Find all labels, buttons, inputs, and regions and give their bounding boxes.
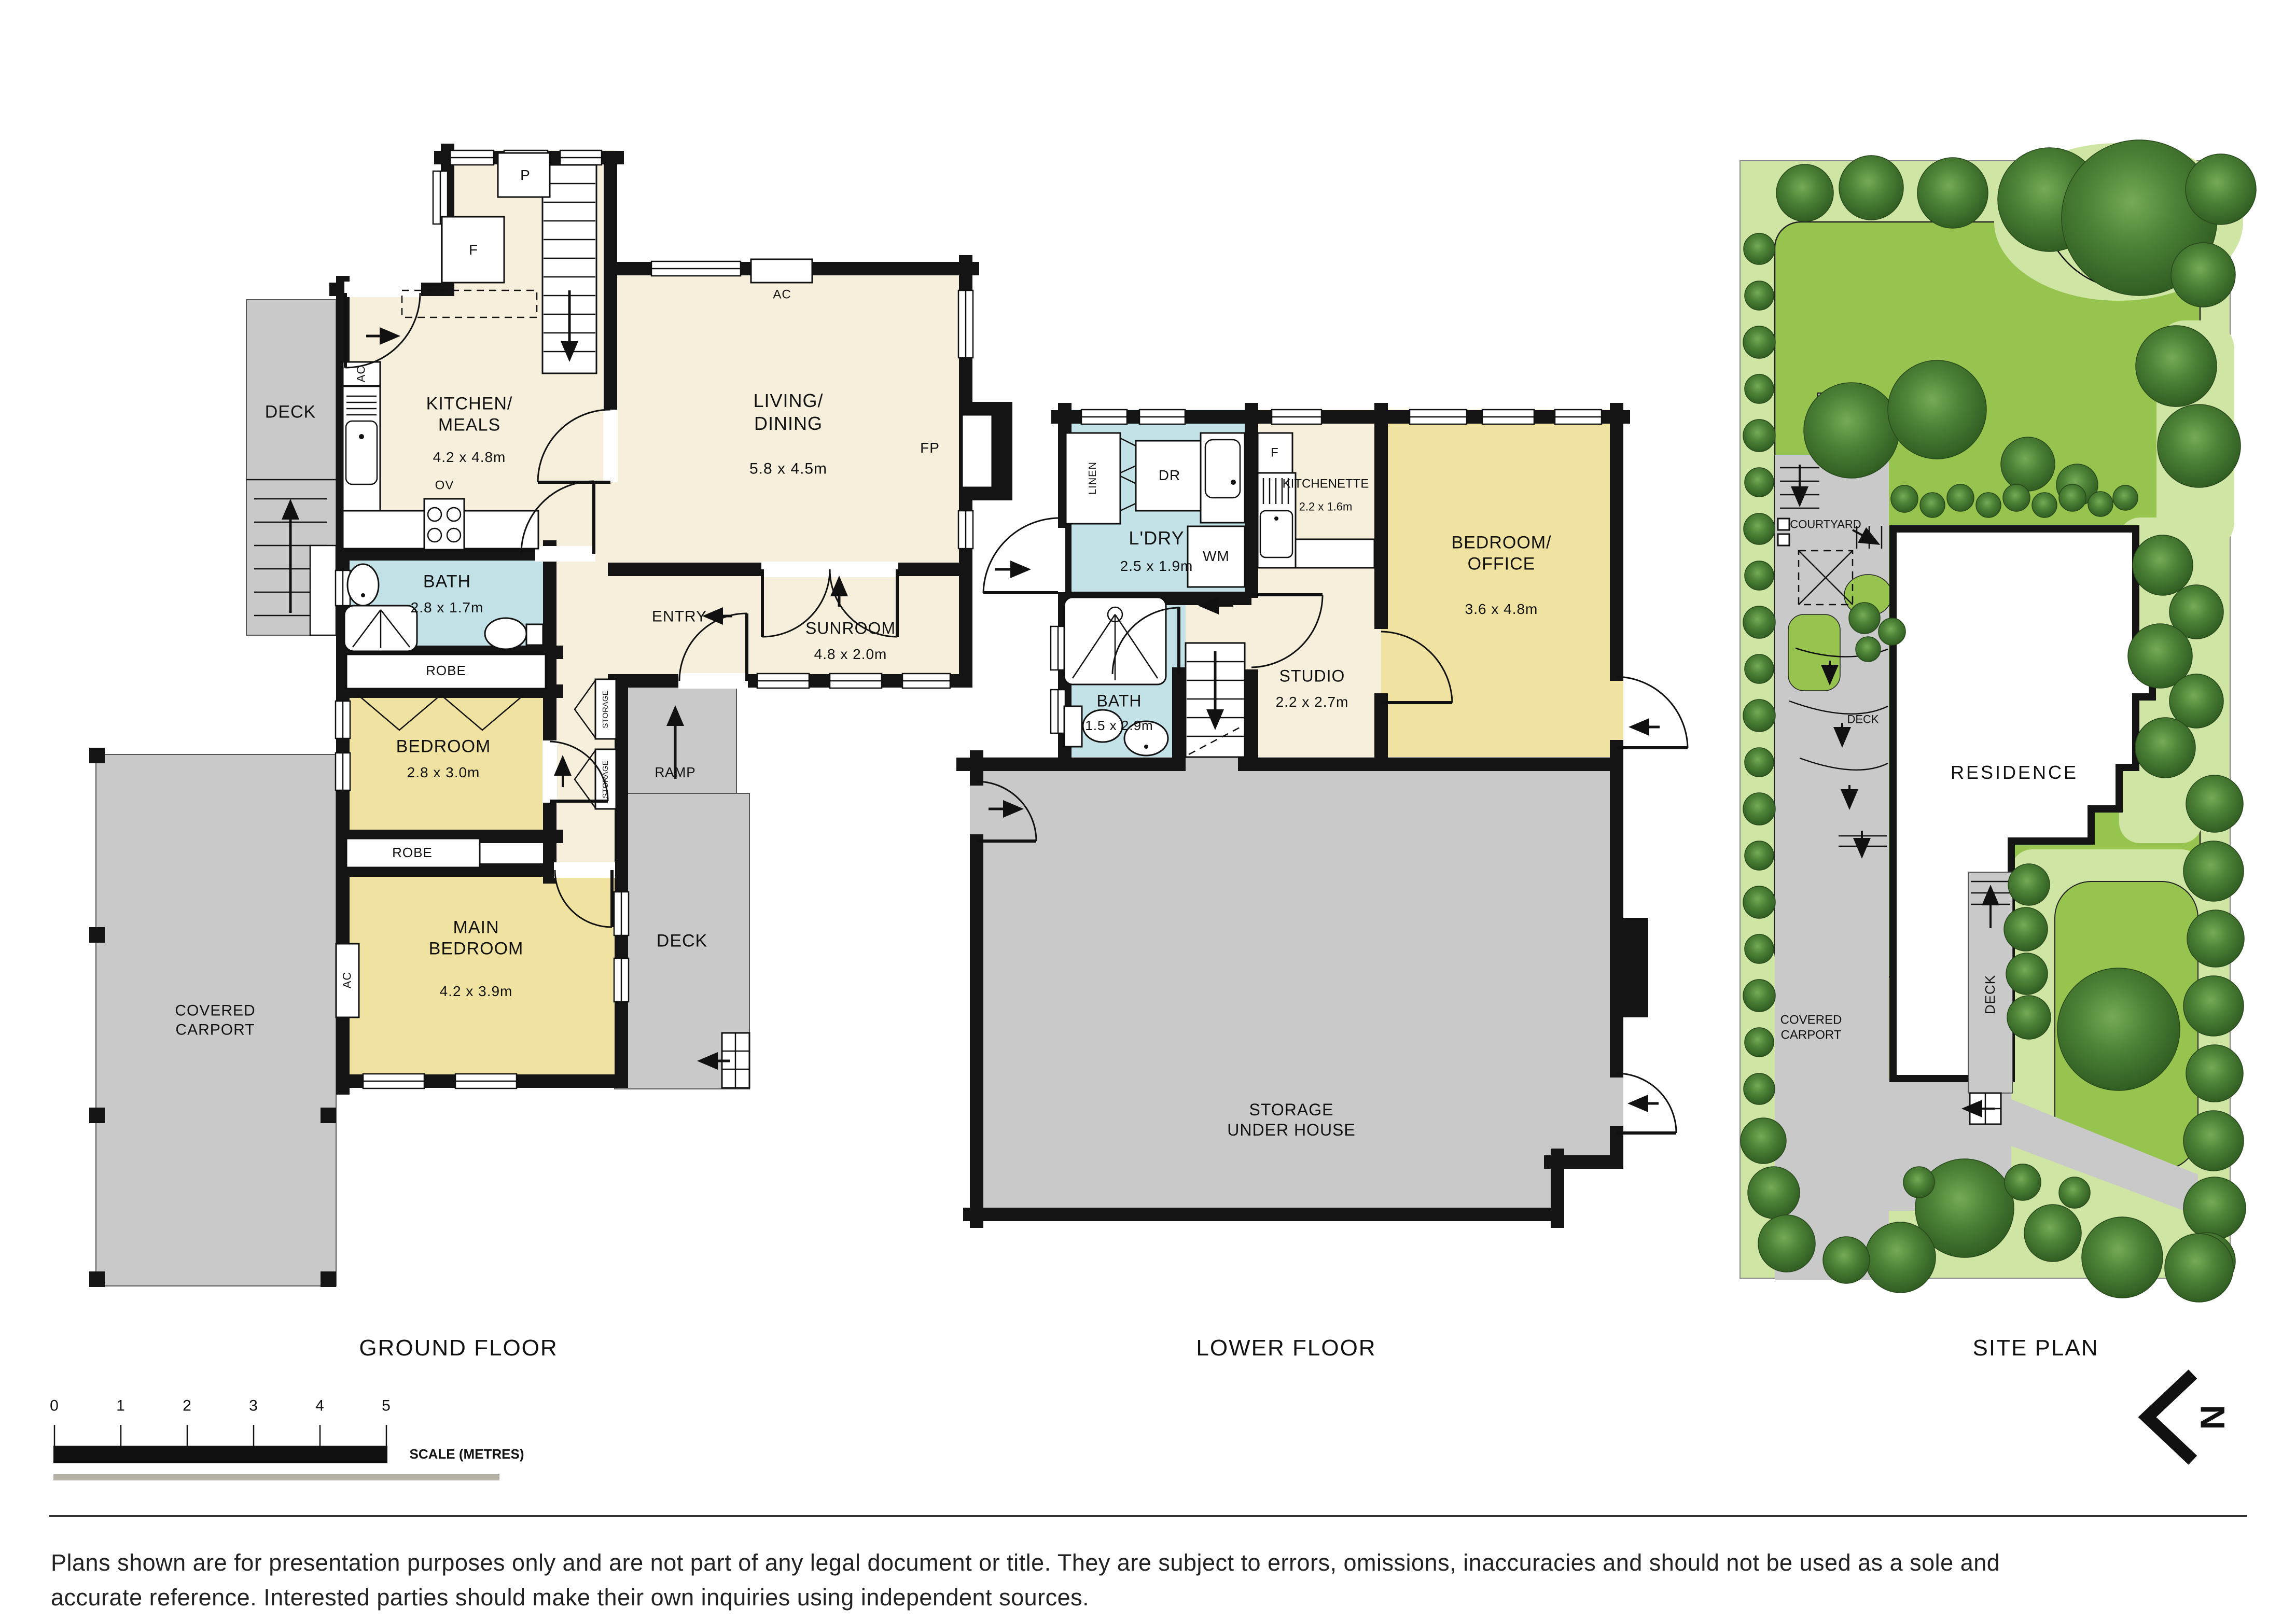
living-label: LIVING/ DINING — [753, 389, 823, 435]
scale-tick-5: 5 — [382, 1397, 391, 1416]
site-carport-label: COVERED CARPORT — [1780, 1013, 1842, 1043]
scale-tick-0: 0 — [50, 1397, 59, 1416]
carport-label: COVERED CARPORT — [175, 1001, 255, 1039]
fridge-label: F — [469, 241, 478, 259]
room-main-bedroom — [343, 870, 615, 1081]
meter-box-2 — [1778, 534, 1789, 545]
kitchen-label: KITCHEN/ MEALS — [426, 394, 513, 437]
robe2-label: ROBE — [392, 845, 433, 861]
scale-tick-2: 2 — [183, 1397, 192, 1416]
site-plan — [1740, 140, 2256, 1302]
fridge-lower-label: F — [1271, 445, 1279, 460]
lower-door-gaps — [1051, 528, 1065, 592]
kitchenette-label: KITCHENETTE — [1283, 476, 1369, 491]
scale-tick-3: 3 — [249, 1397, 258, 1416]
bedroom-dims: 2.8 x 3.0m — [407, 764, 480, 781]
ac-living-label: AC — [773, 287, 791, 302]
studio-dims: 2.2 x 2.7m — [1276, 693, 1349, 711]
deck-top-label: DECK — [265, 401, 316, 423]
residence-label: RESIDENCE — [1951, 761, 2078, 784]
fireplace-label: FP — [920, 439, 940, 457]
bedroom-office-label: BEDROOM/ OFFICE — [1451, 533, 1551, 576]
laundry-label: L'DRY — [1129, 527, 1184, 550]
ground-floor-plan — [89, 150, 1012, 1287]
scale-tick-1: 1 — [116, 1397, 126, 1416]
oven-label: OV — [435, 478, 454, 493]
bedroom-label: BEDROOM — [396, 736, 491, 757]
main-bedroom-label: MAIN BEDROOM — [429, 917, 524, 960]
bedroom-office-dims: 3.6 x 4.8m — [1465, 600, 1538, 618]
bath-lower-label: BATH — [1097, 691, 1142, 711]
lower-stairs-icon — [1186, 643, 1245, 757]
ground-floor-title: GROUND FLOOR — [359, 1334, 558, 1362]
room-bedroom-office — [1381, 410, 1623, 757]
left-lawn-patch — [1788, 614, 1840, 691]
north-arrow-icon — [2147, 1374, 2193, 1460]
deck-right-label: DECK — [657, 930, 707, 952]
entry-label: ENTRY — [652, 608, 707, 627]
meter-box-1 — [1778, 519, 1789, 530]
kitchen-dims: 4.2 x 4.8m — [433, 449, 506, 466]
ac-kitchen-label: AC — [355, 366, 369, 383]
main-bedroom-dims: 4.2 x 3.9m — [440, 983, 513, 1000]
storage-side-door-block — [1610, 918, 1648, 1017]
disclaimer-line1: Plans shown are for presentation purpose… — [51, 1549, 2000, 1576]
north-letter: N — [2192, 1405, 2234, 1431]
ac-unit-living-icon — [751, 259, 812, 283]
disclaimer-line2: accurate reference. Interested parties s… — [51, 1584, 1089, 1611]
storage1-label: STORAGE — [601, 690, 610, 728]
bath-lower-dims: 1.5 x 2.9m — [1085, 718, 1153, 734]
studio-label: STUDIO — [1279, 666, 1345, 686]
site-deck1-label: DECK — [1847, 713, 1878, 727]
courtyard-label: COURTYARD — [1790, 518, 1861, 532]
floorplan-page: DECK KITCHEN/ MEALS 4.2 x 4.8m OV P F AC… — [0, 0, 2296, 1623]
laundry-dims: 2.5 x 1.9m — [1120, 557, 1193, 575]
bath-ground-dims: 2.8 x 1.7m — [411, 599, 484, 617]
lower-floor-title: LOWER FLOOR — [1196, 1334, 1376, 1362]
ac-main-label: AC — [341, 972, 355, 989]
scale-tick-4: 4 — [315, 1397, 325, 1416]
kitchenette-dims: 2.2 x 1.6m — [1299, 500, 1353, 514]
plan-graphics — [0, 0, 2296, 1623]
robe1-label: ROBE — [426, 663, 466, 679]
site-deck2-label: DECK — [1982, 975, 1999, 1014]
linen-label: LINEN — [1087, 461, 1099, 495]
storage2-label: STORAGE — [601, 760, 610, 798]
divider-line — [49, 1515, 2247, 1517]
dryer-label: DR — [1159, 467, 1180, 484]
room-storage-under-house — [970, 757, 1623, 1221]
scale-metres-label: SCALE (METRES) — [410, 1446, 524, 1463]
bath-ground-label: BATH — [423, 571, 471, 592]
washer-label: WM — [1203, 548, 1230, 565]
living-dims: 5.8 x 4.5m — [749, 460, 827, 479]
pantry-label: P — [520, 166, 531, 184]
site-plan-title: SITE PLAN — [1973, 1334, 2099, 1362]
storage-under-house-label: STORAGE UNDER HOUSE — [1227, 1100, 1355, 1140]
kitchen-stairs-icon — [542, 165, 596, 373]
ramp-label: RAMP — [655, 764, 695, 781]
sunroom-label: SUNROOM — [805, 618, 896, 638]
sunroom-dims: 4.8 x 2.0m — [814, 646, 887, 663]
